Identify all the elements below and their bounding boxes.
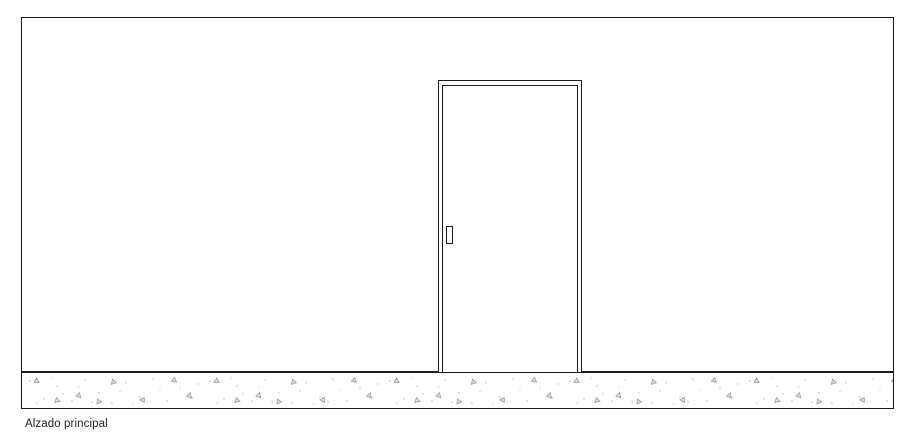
door-leaf	[442, 85, 578, 372]
door-handle	[446, 226, 453, 244]
elevation-drawing-canvas: Alzado principal	[0, 0, 912, 441]
ground-strip	[21, 372, 894, 409]
drawing-caption: Alzado principal	[25, 417, 108, 431]
concrete-hatch	[22, 373, 893, 408]
